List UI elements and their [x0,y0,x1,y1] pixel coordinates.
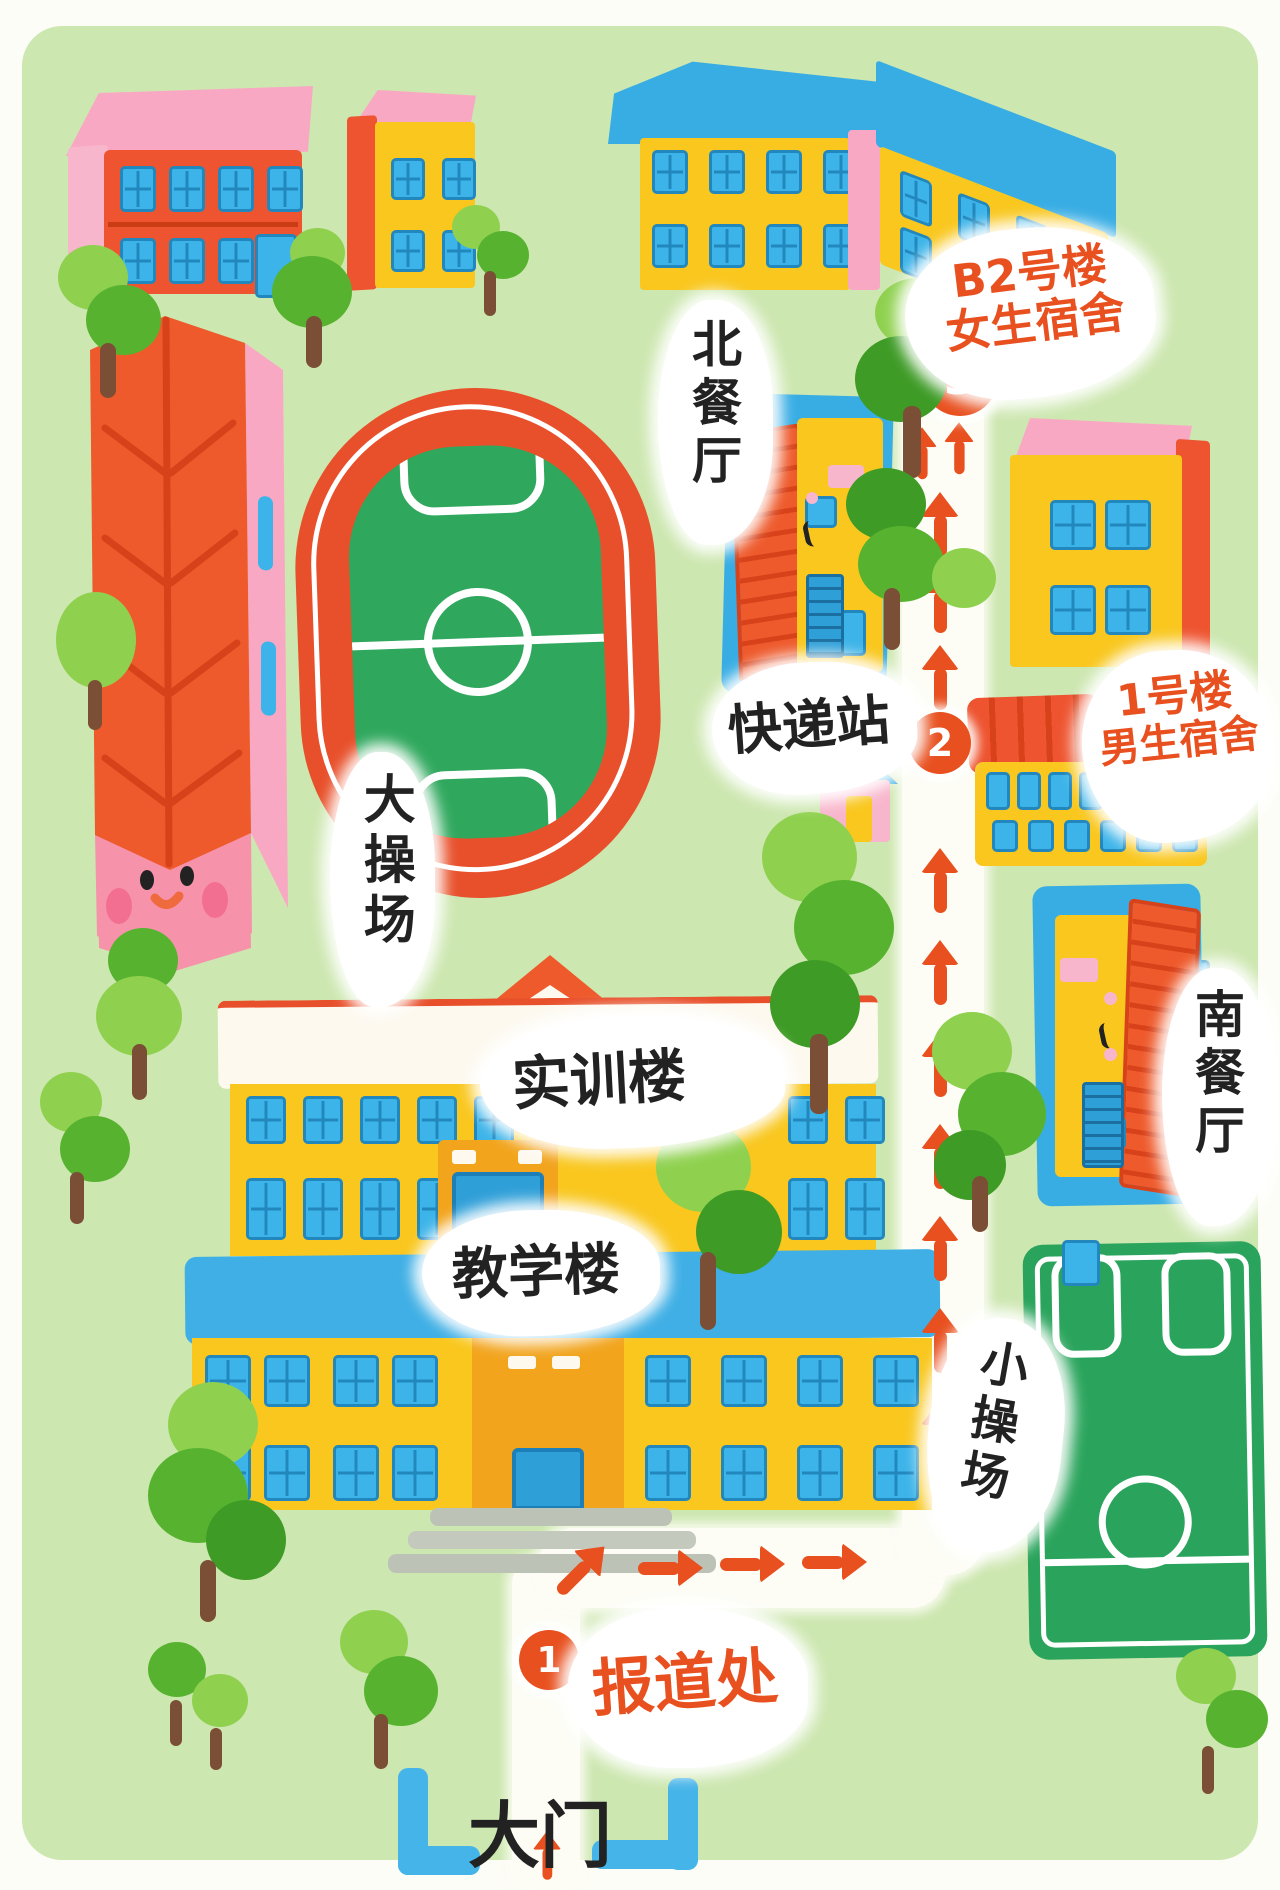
window [766,150,802,194]
window [797,1445,843,1501]
steps [430,1508,672,1526]
window [788,1178,828,1240]
window [797,1355,843,1407]
window [845,1178,885,1240]
label-express-station: 快递站 [726,690,892,762]
label-north-canteen: 北餐厅 [685,318,741,492]
window [246,1096,286,1144]
transom [452,1150,476,1164]
pink-dot [1104,992,1117,1005]
label-registration: 报道处 [590,1642,780,1724]
window [1105,585,1151,635]
window [721,1355,767,1407]
window [303,1178,343,1240]
window [267,166,303,212]
window [652,150,688,194]
window [1050,500,1096,550]
label-boys-dorm: 1号楼 男生宿舍 [1088,663,1267,773]
window [766,224,802,268]
grille-window [806,574,844,658]
window [169,166,205,212]
tree [272,228,372,368]
window [392,1355,438,1407]
label-training-building: 实训楼 [510,1043,687,1117]
route-arrow-right [795,1543,867,1581]
tree [40,1072,135,1232]
pink-dot [806,492,818,504]
floor-line [108,222,298,227]
route-arrow-right [713,1545,785,1583]
steps [408,1531,696,1549]
transom [508,1356,536,1369]
window [1028,820,1054,852]
window [900,170,932,228]
window [360,1178,400,1240]
window [360,1096,400,1144]
pink-sign [1060,958,1098,982]
window [218,166,254,212]
tree [148,1382,293,1632]
label-big-playground: 大操场 [355,772,413,952]
route-arrow-up [921,848,959,920]
window [303,1096,343,1144]
window [1050,585,1096,635]
facade [1010,455,1182,667]
window [392,1445,438,1501]
window [417,1096,457,1144]
window [1064,820,1090,852]
window [709,150,745,194]
window [218,238,254,284]
window [645,1355,691,1407]
route-arrow-right [631,1549,703,1587]
tree [58,245,168,405]
tree [340,1610,450,1775]
label-teaching-building: 教学楼 [451,1239,621,1308]
transom [552,1356,580,1369]
label-south-canteen: 南餐厅 [1188,988,1244,1162]
window [333,1355,379,1407]
window [169,238,205,284]
window [1105,500,1151,550]
route-stop-2: 2 [909,712,971,774]
tree [148,1642,278,1792]
window [391,158,425,200]
window [1017,772,1041,810]
entrance-door [512,1448,584,1510]
window [442,158,476,200]
window [1062,1240,1100,1286]
window [873,1355,919,1407]
label-gate: 大门 [468,1796,612,1877]
campus-map: 1 2 3 [0,0,1280,1890]
grille-window [1082,1082,1124,1168]
tree [1176,1648,1276,1808]
window [652,224,688,268]
transom [518,1150,542,1164]
window [986,772,1010,810]
window [391,230,425,272]
pink-dot [1104,1048,1117,1061]
window [333,1445,379,1501]
window [721,1445,767,1501]
window [645,1445,691,1501]
window [873,1445,919,1501]
corner-wall [848,130,880,290]
window [246,1178,286,1240]
window [1048,772,1072,810]
tree [932,548,1002,628]
window [992,820,1018,852]
window [120,166,156,212]
route-arrow-up [921,940,959,1012]
tree [928,1012,1048,1232]
tree [452,205,542,325]
window [709,224,745,268]
tree [56,592,151,742]
